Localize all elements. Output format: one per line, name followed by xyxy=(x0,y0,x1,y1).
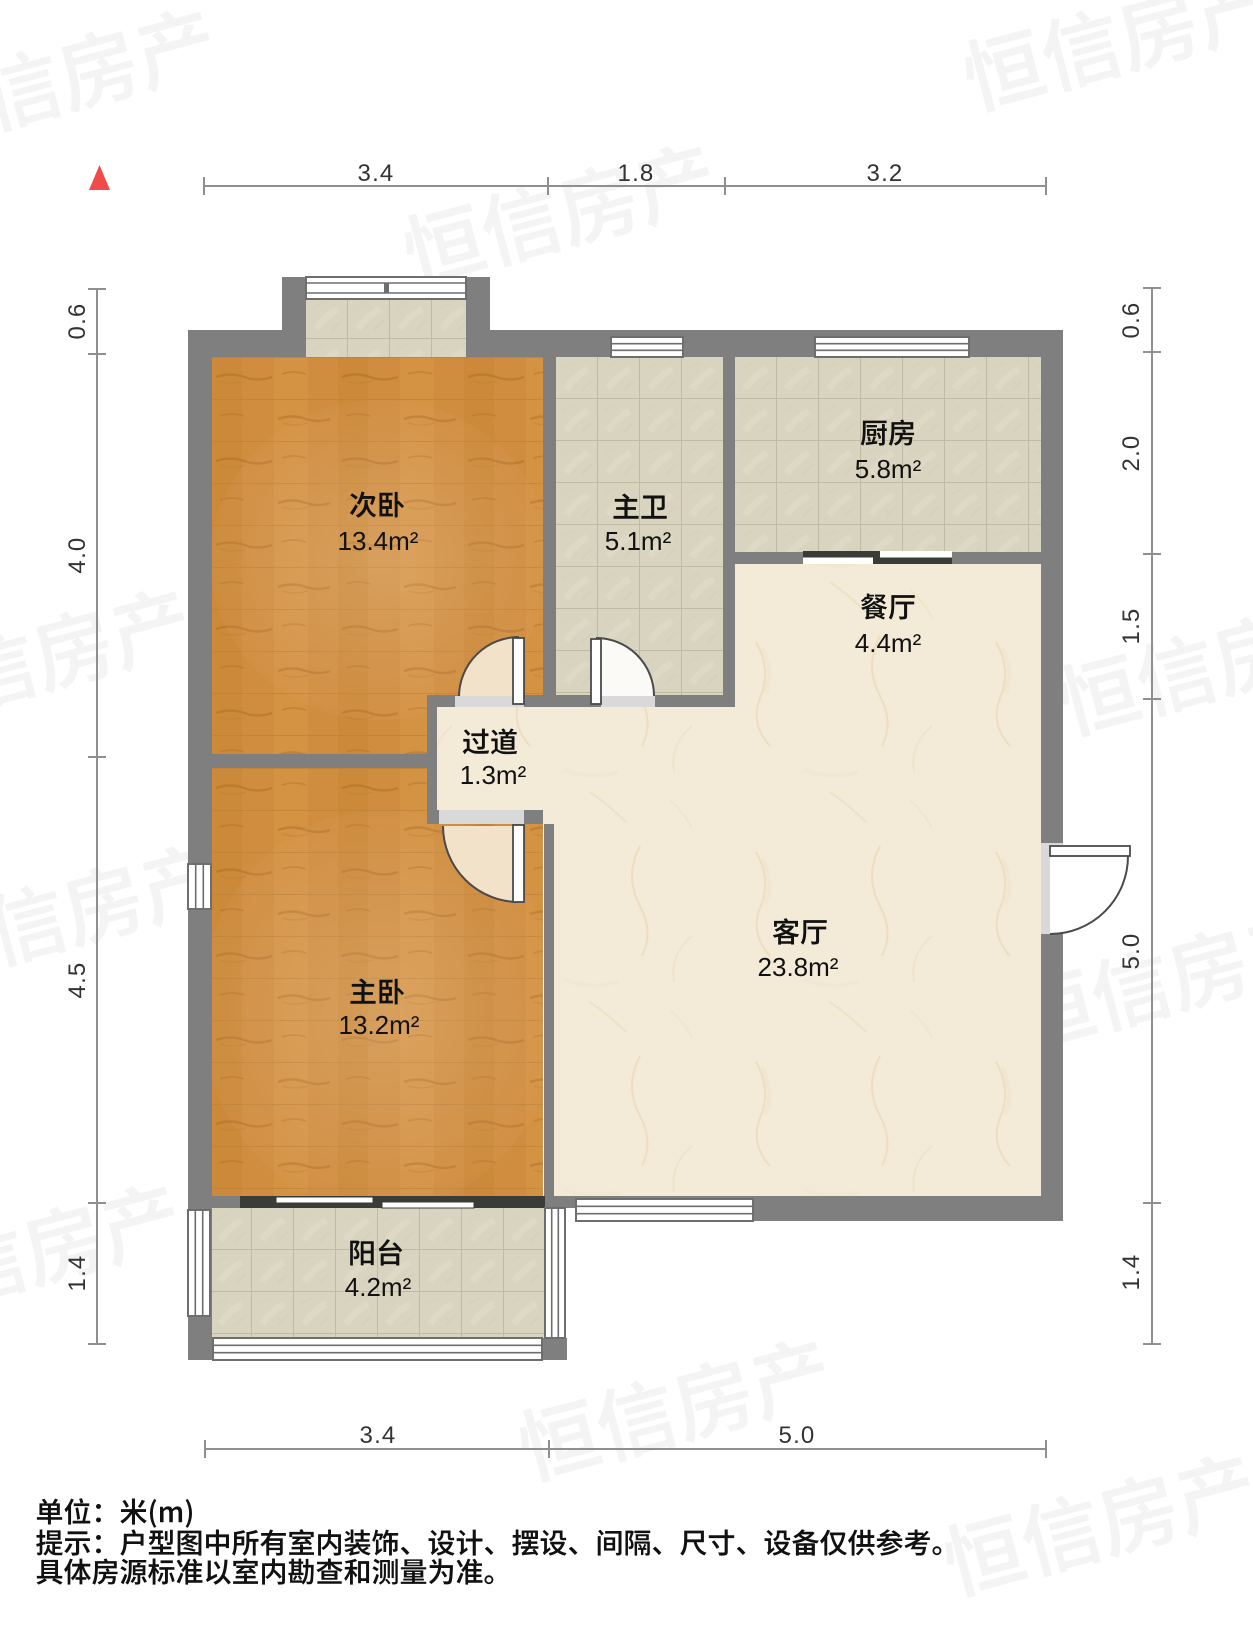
svg-text:13.2m²: 13.2m² xyxy=(339,1010,420,1040)
svg-text:2.0: 2.0 xyxy=(1118,435,1145,472)
svg-text:4.0: 4.0 xyxy=(64,537,91,574)
svg-text:4.5: 4.5 xyxy=(64,962,91,999)
svg-text:5.8m²: 5.8m² xyxy=(855,454,922,484)
svg-text:1.4: 1.4 xyxy=(64,1255,91,1292)
svg-text:23.8m²: 23.8m² xyxy=(758,952,839,982)
svg-text:4.4m²: 4.4m² xyxy=(855,628,922,658)
svg-text:3.4: 3.4 xyxy=(360,1422,397,1449)
svg-text:3.2: 3.2 xyxy=(867,160,904,187)
svg-text:0.6: 0.6 xyxy=(64,303,91,340)
svg-text:5.0: 5.0 xyxy=(1118,933,1145,970)
svg-text:1.5: 1.5 xyxy=(1118,608,1145,645)
svg-text:4.2m²: 4.2m² xyxy=(345,1272,412,1302)
svg-text:1.4: 1.4 xyxy=(1118,1254,1145,1291)
svg-text:0.6: 0.6 xyxy=(1118,302,1145,339)
svg-text:13.4m²: 13.4m² xyxy=(338,526,419,556)
svg-text:1.3m²: 1.3m² xyxy=(460,760,527,790)
svg-text:1.8: 1.8 xyxy=(618,160,655,187)
svg-text:5.0: 5.0 xyxy=(779,1422,816,1449)
svg-text:3.4: 3.4 xyxy=(358,160,395,187)
svg-text:5.1m²: 5.1m² xyxy=(605,526,672,556)
